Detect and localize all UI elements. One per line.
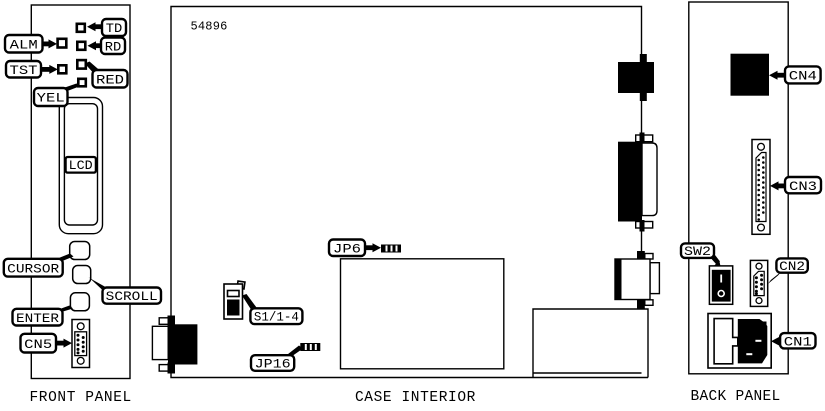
svg-text:YEL: YEL [37,91,65,106]
svg-text:RD: RD [105,39,122,54]
svg-text:BACK PANEL: BACK PANEL [691,389,781,405]
svg-text:FRONT PANEL: FRONT PANEL [30,390,132,406]
svg-text:CN3: CN3 [789,179,817,194]
svg-text:S1/1-4: S1/1-4 [254,310,299,325]
svg-text:LCD: LCD [69,158,93,173]
svg-text:TST: TST [10,63,38,78]
svg-text:CASE INTERIOR: CASE INTERIOR [355,390,476,406]
svg-text:ALM: ALM [10,37,38,52]
svg-text:CURSOR: CURSOR [7,261,59,276]
svg-text:SW2: SW2 [684,244,711,259]
svg-text:CN5: CN5 [24,337,52,352]
svg-text:ENTER: ENTER [16,311,59,326]
svg-text:SCROLL: SCROLL [106,289,158,304]
svg-text:JP16: JP16 [255,356,291,371]
svg-text:CN2: CN2 [779,259,805,274]
svg-text:CN1: CN1 [784,334,812,349]
svg-text:JP6: JP6 [333,241,361,256]
svg-text:TD: TD [106,21,123,36]
svg-text:54896: 54896 [191,20,228,34]
svg-text:CN4: CN4 [789,68,817,83]
svg-text:RED: RED [96,72,124,87]
